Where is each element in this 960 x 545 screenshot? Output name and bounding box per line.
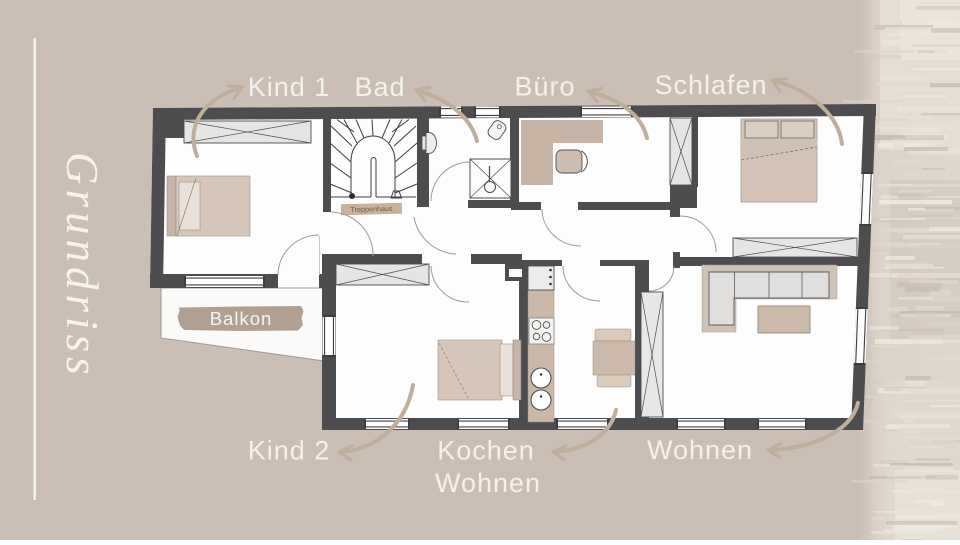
svg-text:Kochen: Kochen xyxy=(437,436,535,466)
svg-text:Grundriss: Grundriss xyxy=(57,152,107,380)
svg-text:Büro: Büro xyxy=(514,72,575,102)
svg-text:Bad: Bad xyxy=(354,72,405,102)
svg-text:Wohnen: Wohnen xyxy=(435,468,541,498)
svg-text:Kind 2: Kind 2 xyxy=(248,436,331,466)
svg-text:Balkon: Balkon xyxy=(210,308,273,329)
svg-text:Treppenhaus: Treppenhaus xyxy=(350,204,393,214)
svg-text:Schlafen: Schlafen xyxy=(654,70,767,100)
svg-text:Wohnen: Wohnen xyxy=(647,435,753,465)
svg-text:Kind 1: Kind 1 xyxy=(248,72,331,102)
